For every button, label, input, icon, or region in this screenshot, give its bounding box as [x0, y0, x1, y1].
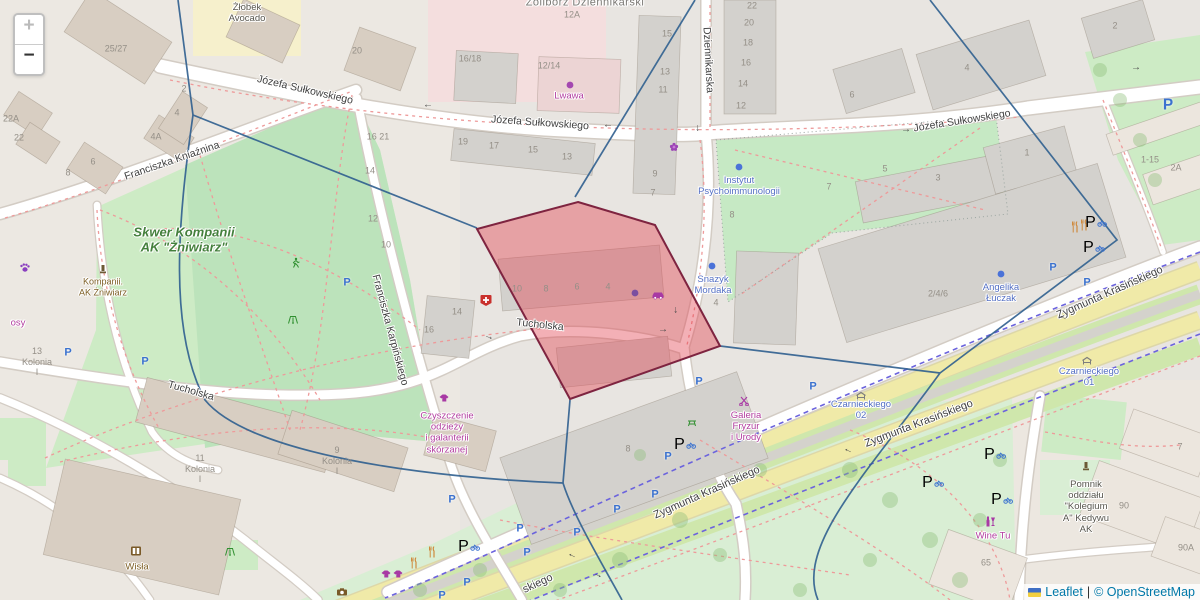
map-viewport[interactable]: Józefa SułkowskiegoJózefa SułkowskiegoJó… — [0, 0, 1200, 600]
attribution-separator: | — [1087, 585, 1090, 599]
zoom-in-button[interactable]: + — [15, 15, 43, 45]
openstreetmap-link[interactable]: © OpenStreetMap — [1094, 585, 1195, 599]
zoom-out-button[interactable]: − — [15, 45, 43, 74]
map-tiles — [0, 0, 1200, 600]
attribution-bar: Leaflet | © OpenStreetMap — [1024, 584, 1200, 600]
leaflet-link[interactable]: Leaflet — [1045, 585, 1083, 599]
zoom-control: + − — [13, 13, 45, 76]
ukraine-flag-icon — [1028, 588, 1041, 597]
